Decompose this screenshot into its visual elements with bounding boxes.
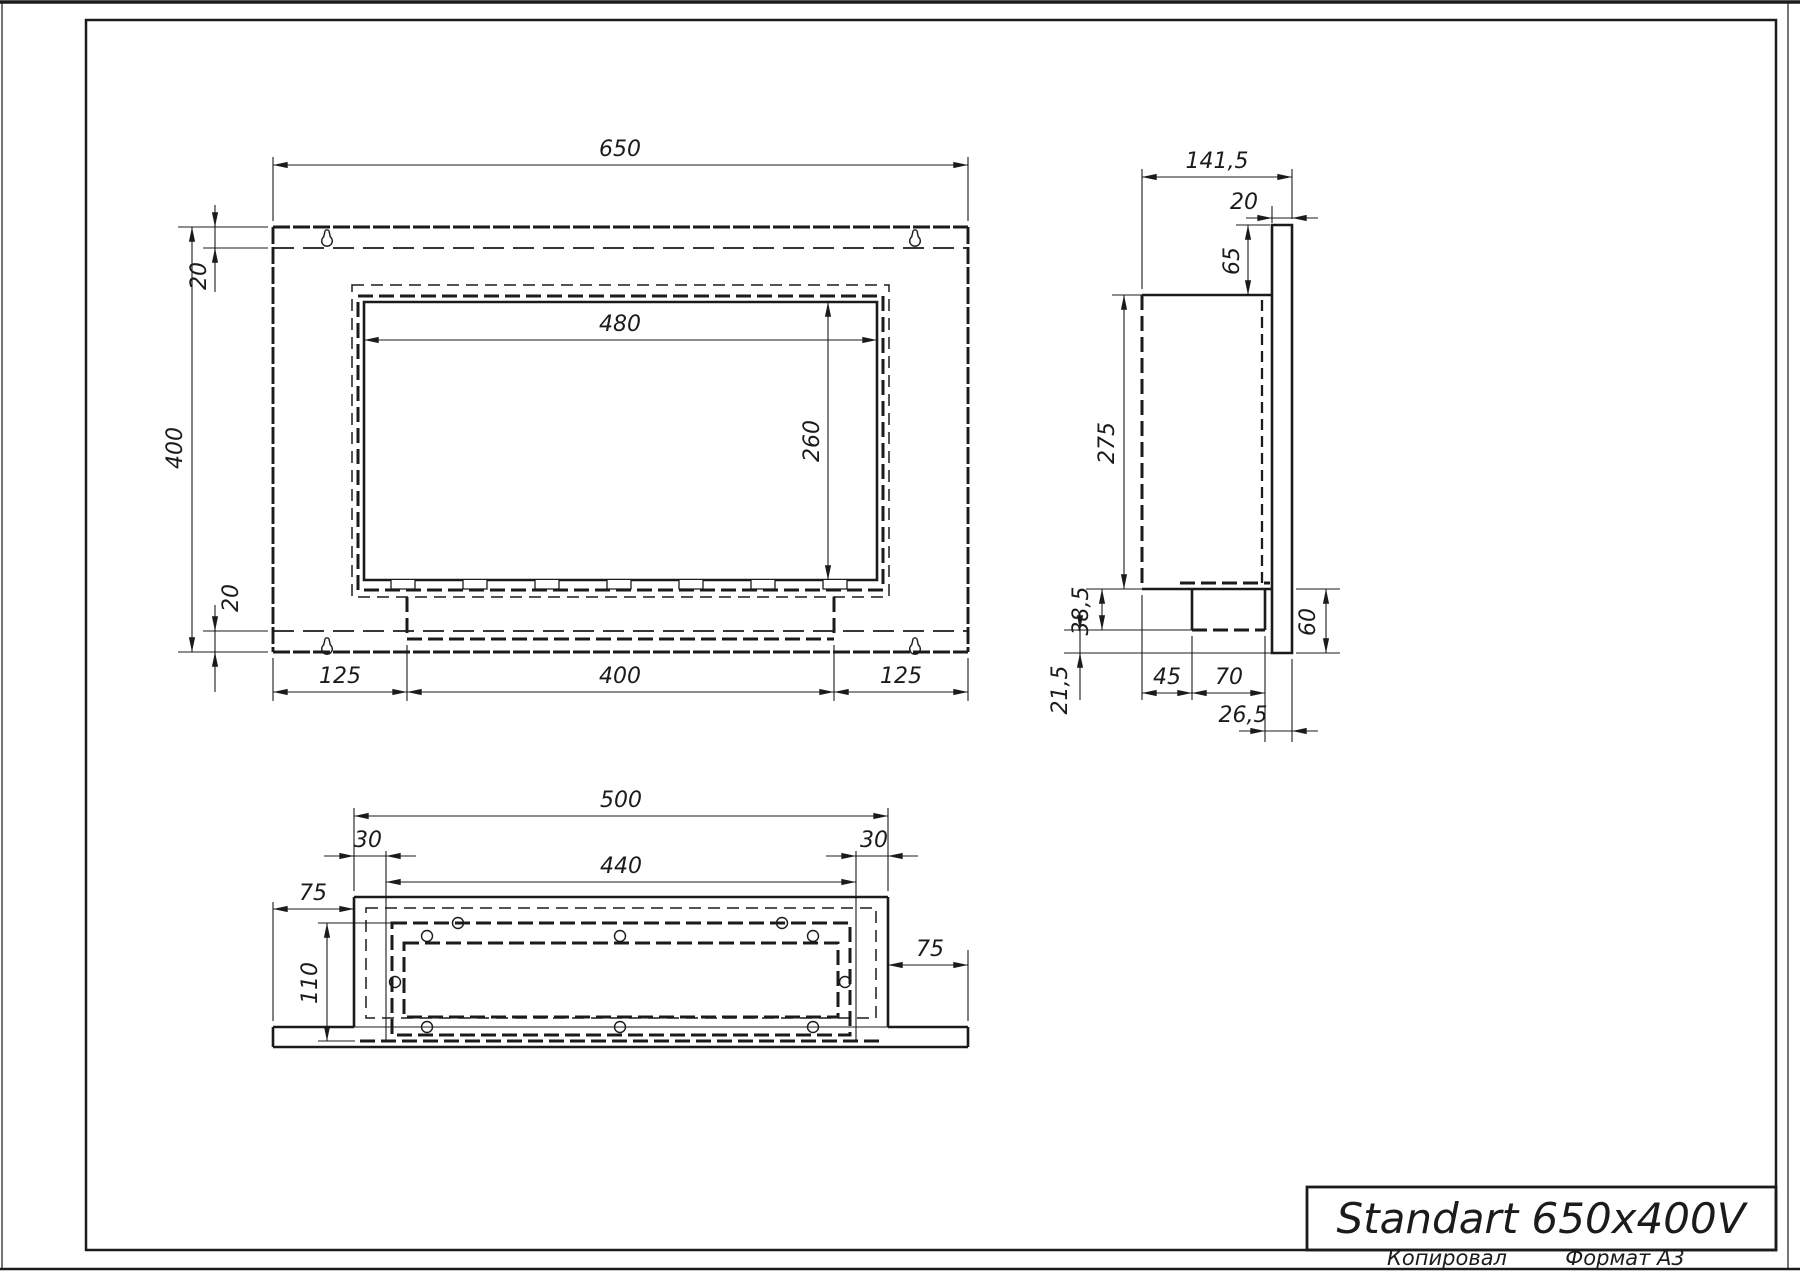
dim-front-top-offset: 20 xyxy=(187,262,212,290)
screw-hole xyxy=(422,931,433,942)
dim-side-body-inset: 45 xyxy=(1153,665,1181,690)
drawing-sheet: 650 400 20 20 480 260 125 400 125 141,5 … xyxy=(0,0,1800,1273)
dim-bottom-side-inset-left: 30 xyxy=(354,828,382,853)
technical-drawing-canvas: 650 400 20 20 480 260 125 400 125 141,5 … xyxy=(0,0,1800,1273)
dim-side-rear-offset: 26,5 xyxy=(1219,703,1268,728)
dim-front-center-width: 400 xyxy=(599,664,641,689)
dim-front-bottom-offset: 20 xyxy=(219,584,244,612)
side-solid-outline xyxy=(1142,225,1292,653)
keyhole-mount-icon xyxy=(910,230,921,246)
dim-front-opening-height: 260 xyxy=(800,420,825,462)
dim-front-opening-width: 480 xyxy=(599,312,641,337)
sheet-border xyxy=(0,2,1800,1269)
dim-side-burner-depth: 70 xyxy=(1215,665,1243,690)
copied-label: Копировал xyxy=(1387,1246,1507,1270)
dim-front-right-margin: 125 xyxy=(880,664,922,689)
screw-hole xyxy=(615,931,626,942)
dim-side-body-height: 275 xyxy=(1095,422,1120,464)
dim-bottom-side-inset-right: 30 xyxy=(860,828,888,853)
dim-bottom-inner-depth: 110 xyxy=(298,962,323,1004)
drawing-title: Standart 650x400V xyxy=(1337,1194,1749,1243)
dim-side-flange-below: 21,5 xyxy=(1048,666,1073,715)
format-label: Формат А3 xyxy=(1565,1246,1685,1270)
drawing-frame xyxy=(86,20,1776,1250)
sheet-edge-sides xyxy=(2,2,1788,1269)
front-extension-lines xyxy=(178,157,968,701)
dim-front-total-height: 400 xyxy=(163,427,188,469)
dim-side-flange-bottom-ext: 60 xyxy=(1296,608,1321,636)
dim-bottom-inner-width: 440 xyxy=(600,854,642,879)
bottom-view: 500 30 30 440 75 110 75 xyxy=(273,788,968,1047)
keyhole-mount-icon xyxy=(322,230,333,246)
front-view: 650 400 20 20 480 260 125 400 125 xyxy=(163,137,968,701)
dim-front-total-width: 650 xyxy=(599,137,641,162)
front-burner-serration xyxy=(391,580,847,589)
screw-holes xyxy=(390,918,851,1033)
screw-hole xyxy=(808,931,819,942)
bottom-solid-outline xyxy=(273,897,968,1047)
side-view: 141,5 20 65 275 38,5 21,5 45 70 26,5 60 xyxy=(1048,149,1340,742)
dim-front-left-margin: 125 xyxy=(319,664,361,689)
dim-bottom-flange-left: 75 xyxy=(299,881,327,906)
dim-side-flange-top-ext: 65 xyxy=(1220,247,1245,275)
dim-side-burner-drop: 38,5 xyxy=(1069,587,1094,636)
bottom-through-lines xyxy=(386,851,856,1041)
dim-bottom-flange-right: 75 xyxy=(916,937,944,962)
title-block: Standart 650x400V Копировал Формат А3 xyxy=(1307,1187,1776,1270)
dim-bottom-body-width: 500 xyxy=(600,788,642,813)
side-hidden-lines xyxy=(1142,295,1270,630)
dim-side-total-depth: 141,5 xyxy=(1186,149,1249,174)
front-offset-lines xyxy=(273,248,968,631)
dim-side-flange-thickness: 20 xyxy=(1230,190,1258,215)
